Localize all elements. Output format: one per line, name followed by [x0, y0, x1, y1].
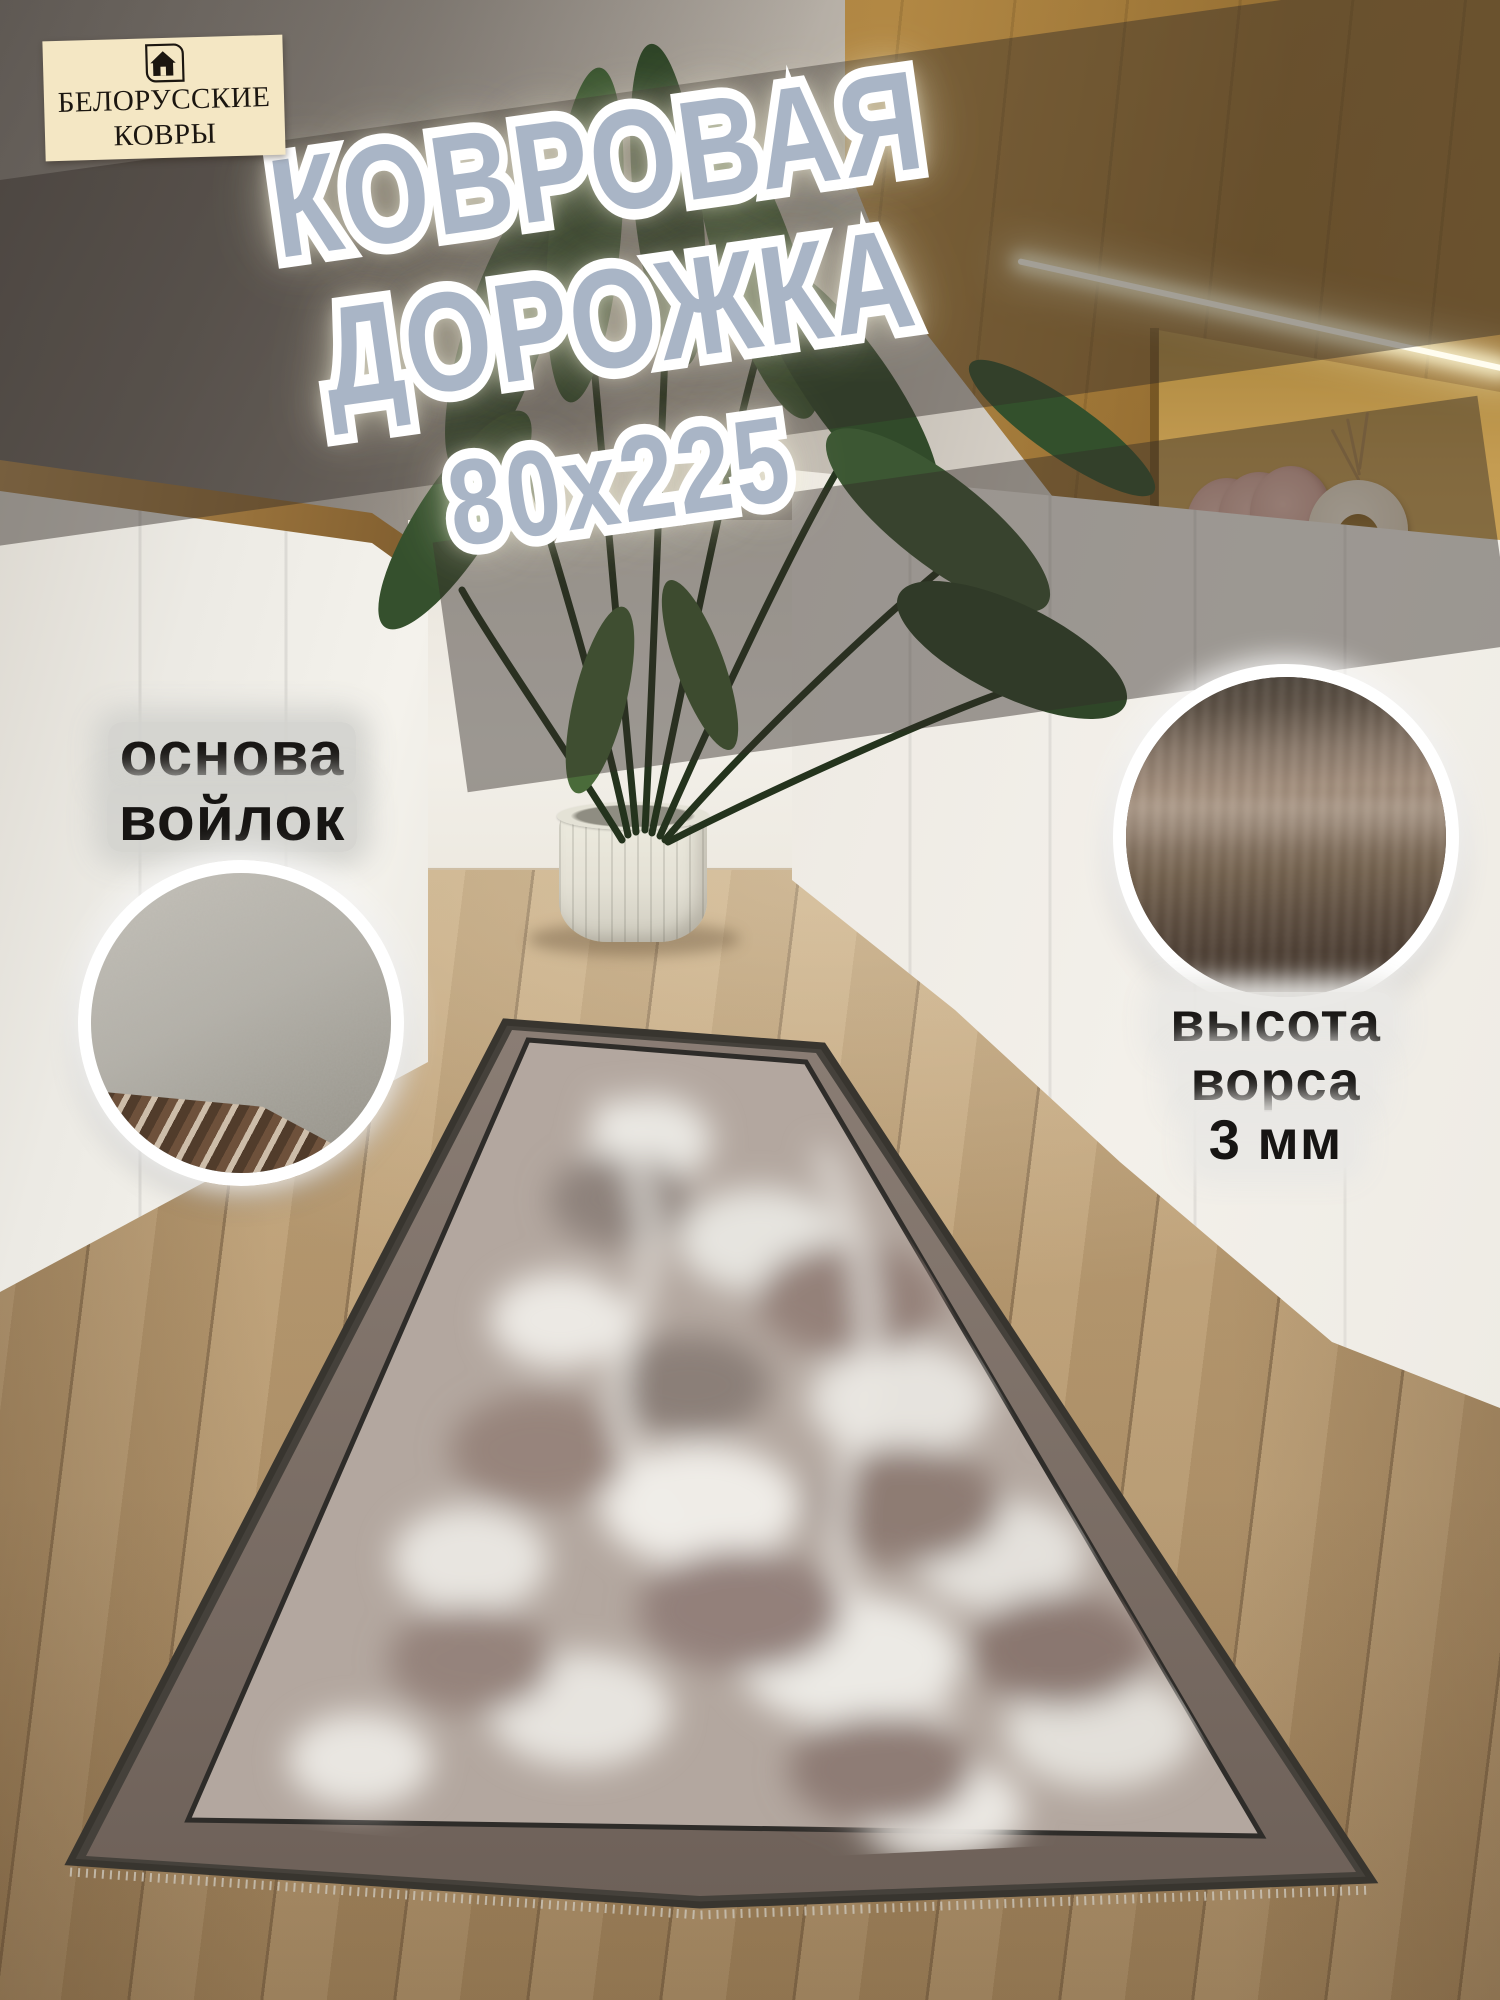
pile-label-line1: высота	[1158, 992, 1393, 1051]
brand-logo-badge: БЕЛОРУССКИЕ КОВРЫ	[42, 35, 285, 162]
pile-highlight	[1126, 799, 1446, 850]
brand-name-line2: КОВРЫ	[113, 117, 217, 155]
pile-closeup-inset-photo	[1113, 664, 1459, 1010]
brand-name-line1: БЕЛОРУССКИЕ	[57, 80, 271, 121]
pile-label-line2: ворса	[1178, 1051, 1372, 1110]
felt-backing-inset-photo	[78, 860, 404, 1186]
backing-label-line2: войлок	[107, 787, 358, 852]
backing-label: основа войлок	[52, 722, 412, 852]
pile-label: высота ворса 3 мм	[1088, 992, 1463, 1169]
backing-label-line1: основа	[108, 722, 357, 787]
product-card: КОВРОВАЯКОВРОВАЯ ДОРОЖКАДОРОЖКА 80x22580…	[0, 0, 1500, 2000]
pile-label-line3: 3 мм	[1197, 1110, 1355, 1169]
house-icon	[140, 42, 185, 83]
